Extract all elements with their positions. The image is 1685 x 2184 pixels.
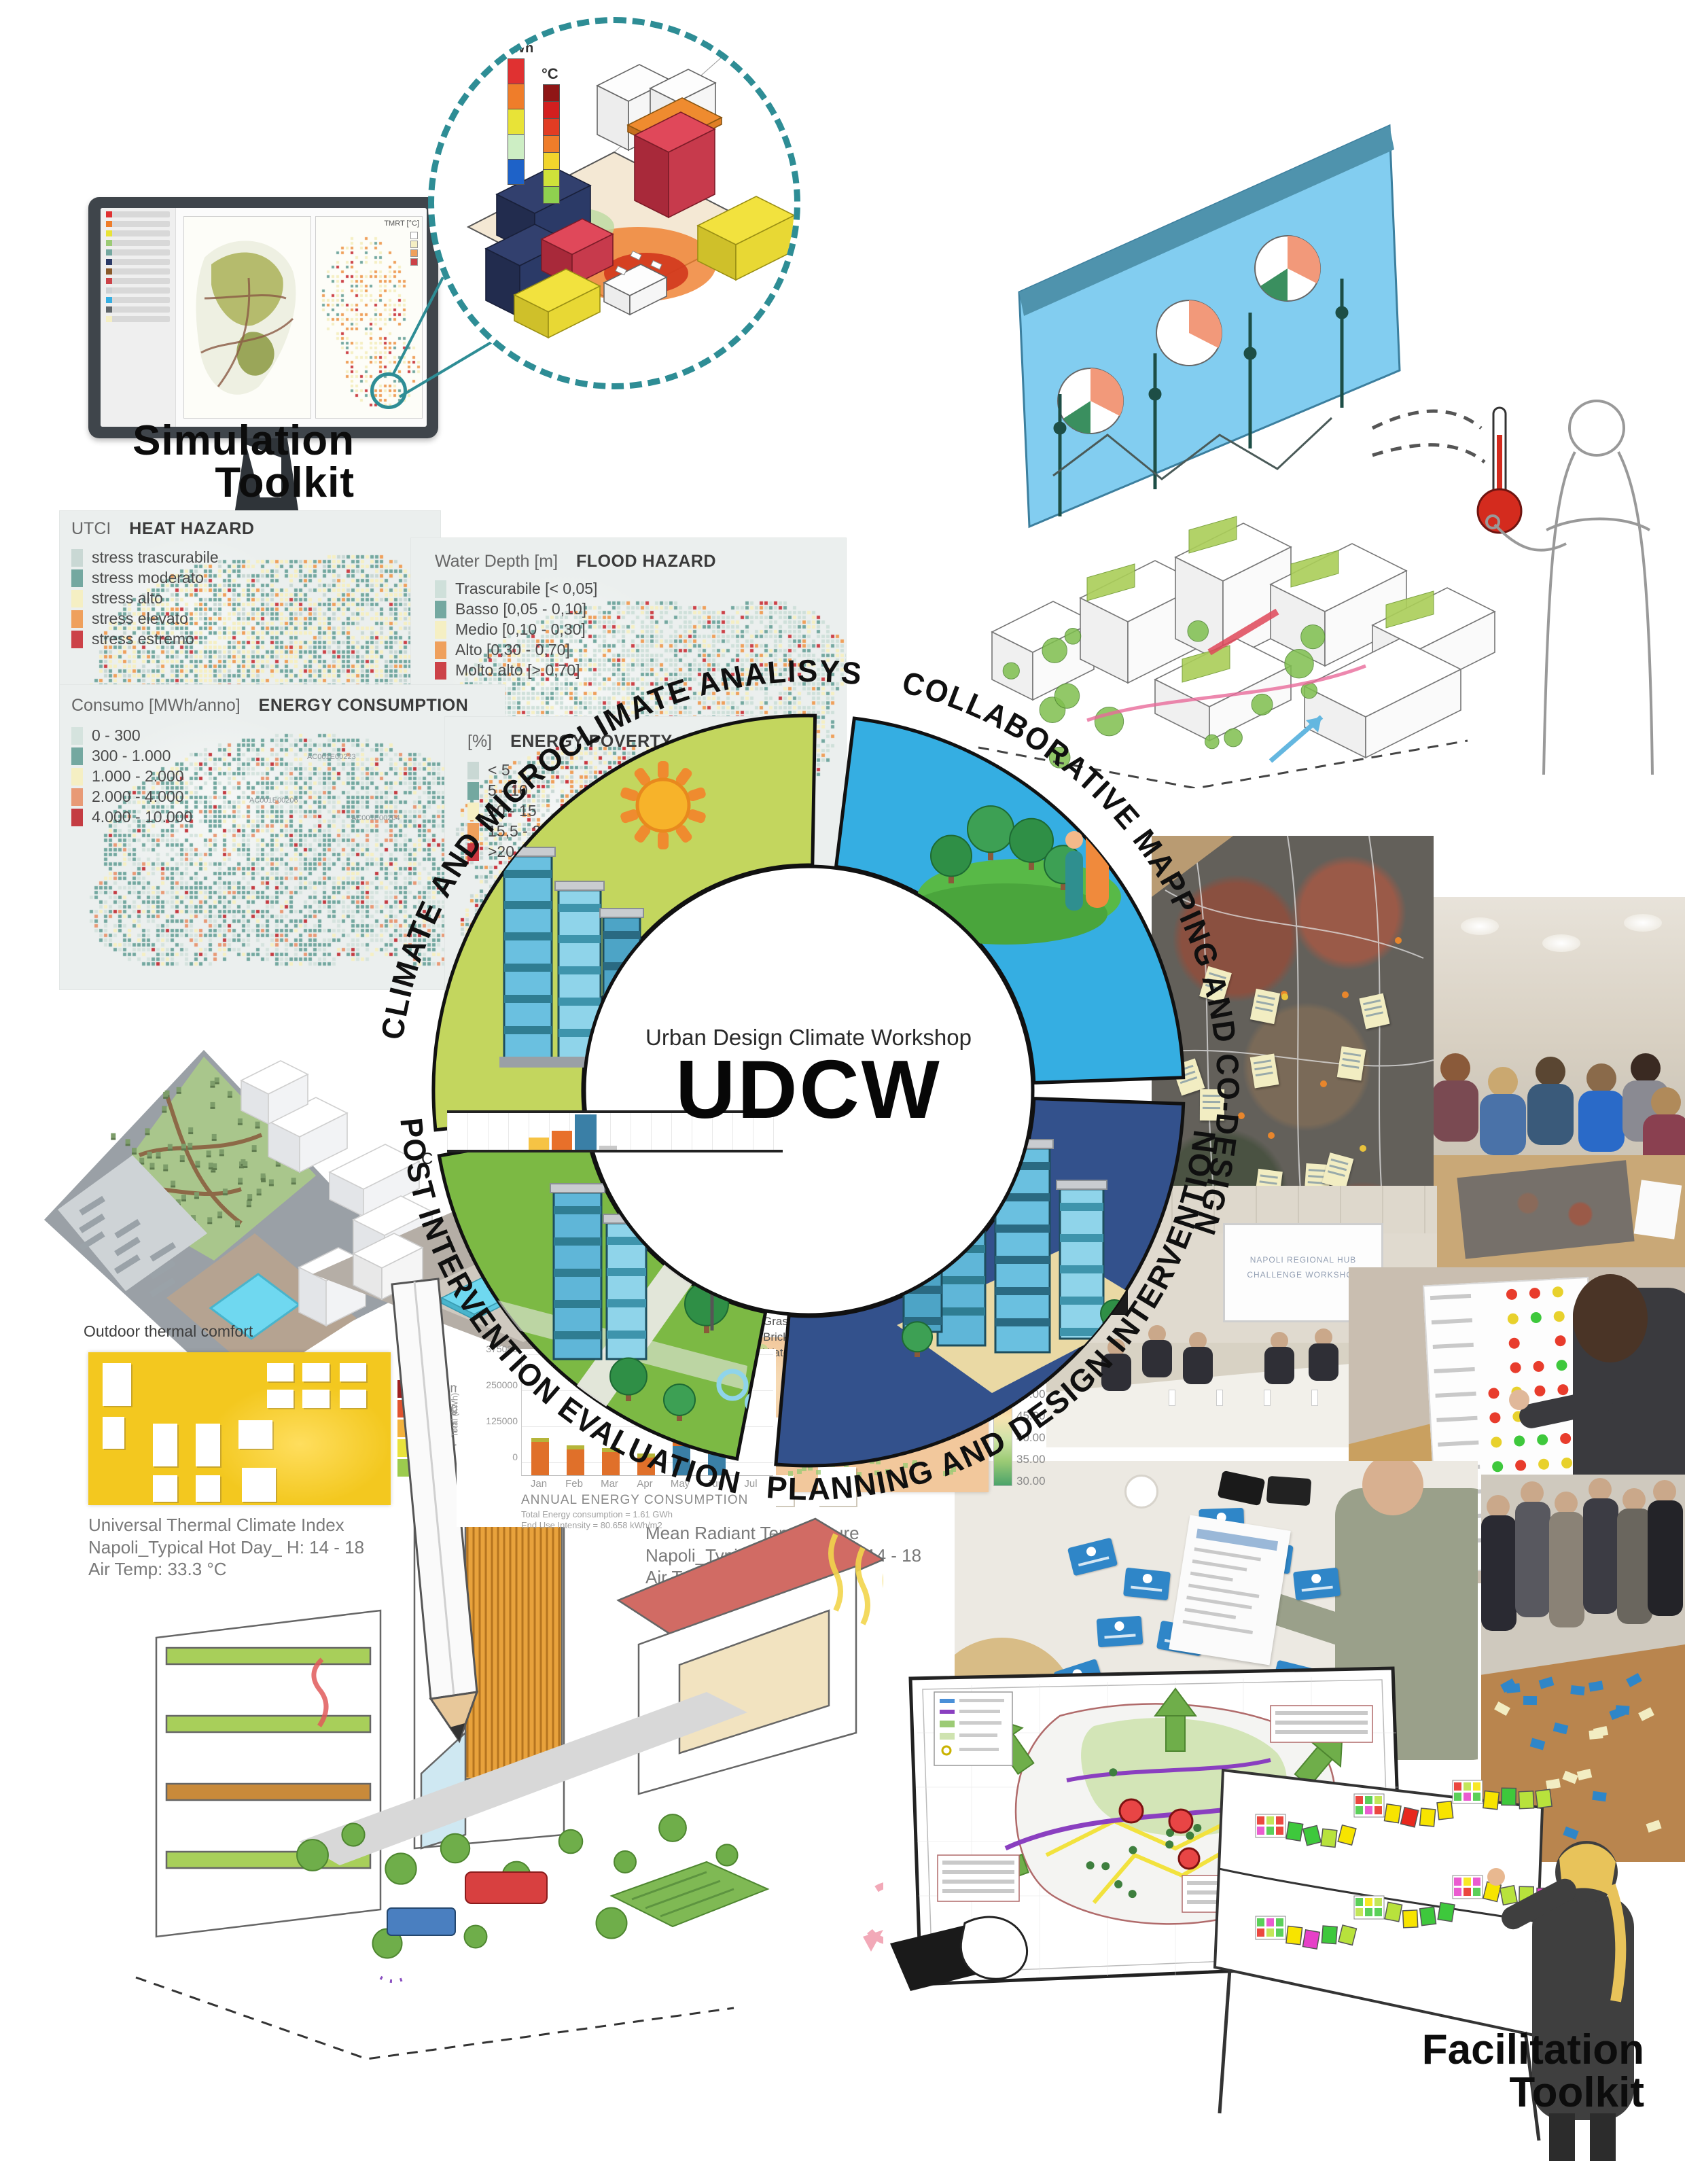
scale-cell xyxy=(508,58,525,84)
scale-tick: 40.00 xyxy=(1016,1431,1046,1445)
map-marker xyxy=(1342,991,1349,998)
blue-card xyxy=(1123,1568,1171,1601)
isometric-energy-model xyxy=(434,23,794,383)
month-label: Jul xyxy=(733,1478,768,1490)
legend-color-chip xyxy=(467,843,479,861)
scale-cell xyxy=(543,187,560,204)
card-icon xyxy=(1086,1546,1097,1557)
vote-dot xyxy=(1560,1433,1572,1445)
poster-text-stub xyxy=(1430,1294,1471,1300)
note-scribble xyxy=(1343,1058,1360,1063)
coffee-cup xyxy=(1124,1475,1158,1509)
sheet-line xyxy=(1194,1547,1261,1561)
vote-dot xyxy=(1557,1384,1569,1396)
legend-row: Wood pavement xyxy=(900,1299,1033,1313)
tmrt-chip xyxy=(410,241,418,248)
vegetation-pixel xyxy=(934,1403,939,1407)
vegetation-pixel xyxy=(892,1403,897,1408)
person-hair xyxy=(1573,1274,1648,1362)
scale-cell xyxy=(543,84,560,102)
facilitation-toolkit-line2: Toolkit xyxy=(1257,2071,1644,2114)
scale-tick: 30.00 xyxy=(1016,1475,1046,1488)
ceiling-light xyxy=(1542,934,1580,952)
note-scribble xyxy=(1255,1065,1273,1070)
note-scribble xyxy=(1342,1064,1360,1069)
blue-card xyxy=(1293,1568,1341,1601)
vegetation-pixel xyxy=(948,1470,953,1475)
heat-hazard-title: HEAT HAZARD xyxy=(129,519,254,538)
scale-cell xyxy=(508,84,525,109)
card-line xyxy=(1302,1586,1333,1592)
person-head xyxy=(1589,1478,1612,1501)
person-body xyxy=(1101,1354,1131,1391)
legend-label: < 5 xyxy=(488,761,510,779)
person-body xyxy=(1264,1347,1294,1384)
month-label: Jun xyxy=(698,1478,733,1490)
y-tick: 0 xyxy=(470,1451,518,1462)
legend-color-chip xyxy=(467,762,479,779)
scale-cell xyxy=(543,136,560,153)
chart-title: ANNUAL ENERGY CONSUMPTION xyxy=(521,1493,748,1508)
legend-label: 15,5 - 20 xyxy=(488,822,550,841)
tmrt-chip xyxy=(410,232,418,239)
landcovers-col2: Concrete pavementWood pavement xyxy=(900,1282,1033,1362)
chart-y-axis-label: Total (kWh) xyxy=(449,1393,459,1438)
legend-row: Concrete pavement xyxy=(900,1284,1033,1297)
tmrt-legend-title: TMRT [°C] xyxy=(384,219,419,228)
legend-label: 300 - 1.000 xyxy=(92,747,171,765)
dashed-flow-lines xyxy=(1372,411,1485,462)
water-bottle xyxy=(1216,1390,1223,1406)
legend-color-chip xyxy=(435,621,446,639)
note-scribble xyxy=(1205,984,1223,991)
vegetation-pixel xyxy=(889,1361,894,1366)
worksheet xyxy=(1169,1515,1290,1665)
layer-row xyxy=(106,316,170,322)
udcw-infographic-poster: TMRT [°C] Simulation Toolkit kWh °C xyxy=(0,0,1685,2184)
scale-cell xyxy=(508,160,525,185)
legend-label: stress moderato xyxy=(92,569,204,587)
vote-dot xyxy=(1534,1385,1546,1396)
area-code: AC001E00206 xyxy=(249,796,298,805)
flood-hazard-legend: Trascurabile [< 0,05]Basso [0,05 - 0,10]… xyxy=(435,578,597,682)
legend-color-chip xyxy=(71,727,83,745)
ring-art-codesign xyxy=(904,803,1121,945)
legend-color-chip xyxy=(71,631,83,648)
thermometer-icon xyxy=(1478,408,1521,533)
legend-label: stress alto xyxy=(92,589,163,607)
note-scribble xyxy=(1180,1076,1198,1084)
poster-text-stub xyxy=(1435,1392,1476,1398)
vegetation-pixel xyxy=(887,1374,891,1379)
celsius-scale-label: °C xyxy=(542,65,558,83)
sticky-note xyxy=(1250,1054,1279,1089)
layer-row xyxy=(106,240,170,246)
legend-label: 10 - 15 xyxy=(488,802,537,820)
person-hand xyxy=(1509,1390,1529,1410)
vegetation-pixel xyxy=(910,1406,915,1411)
energy-bar xyxy=(531,1438,549,1475)
legend-color-chip xyxy=(71,768,83,786)
climate-dashboard-city-sketch xyxy=(951,109,1685,788)
person-body xyxy=(1481,1515,1516,1631)
vote-dot xyxy=(1530,1312,1542,1324)
vegetation-pixel xyxy=(923,1433,927,1438)
layer-row xyxy=(106,230,170,236)
month-label: Jan xyxy=(521,1478,556,1490)
note-scribble xyxy=(1209,972,1226,979)
facilitation-toolkit-title: Facilitation Toolkit xyxy=(1257,2028,1644,2114)
layer-row xyxy=(106,249,170,256)
chart-note-2: End Use Intensity = 80.658 kWh/m2 xyxy=(521,1520,662,1530)
y-tick: 250000 xyxy=(470,1379,518,1390)
legend-row: stress moderato xyxy=(71,569,219,587)
temperature-color-scale xyxy=(993,1349,1012,1486)
legend-row: 300 - 1.000 xyxy=(71,747,192,765)
legend-row: 4.000 - 10.000 xyxy=(71,808,192,826)
facilitation-toolkit-line1: Facilitation xyxy=(1257,2028,1644,2071)
scale-cell xyxy=(543,102,560,119)
layer-row xyxy=(106,278,170,284)
person-body xyxy=(1183,1347,1213,1384)
small-card xyxy=(1571,1685,1585,1695)
legend-color-chip xyxy=(435,601,446,618)
vegetation-pixel xyxy=(915,1414,920,1419)
legend-color-chip xyxy=(71,610,83,628)
vegetation-pixel xyxy=(923,1443,928,1448)
person-head xyxy=(1488,1067,1518,1097)
ceiling-light xyxy=(1624,914,1662,932)
building-footprint xyxy=(886,1379,917,1400)
scale-tick: 35.00 xyxy=(1016,1453,1046,1466)
vote-dot xyxy=(1508,1337,1520,1349)
card-icon xyxy=(1311,1573,1321,1583)
energy-consumption-legend: 0 - 300300 - 1.0001.000 - 2.0002.000 - 4… xyxy=(71,724,192,828)
vote-dot xyxy=(1556,1360,1567,1371)
energy-model-zoom-circle: kWh °C xyxy=(428,17,800,389)
heat-hazard-prefix: UTCI xyxy=(71,519,111,538)
area-code: AC001E00223 xyxy=(307,753,356,761)
legend-label: 2.000 - 4.000 xyxy=(92,788,184,806)
person-body xyxy=(1480,1094,1526,1155)
vegetation-pixel xyxy=(908,1369,913,1374)
scale-cell xyxy=(543,119,560,136)
vote-dot xyxy=(1507,1313,1519,1324)
vote-dot xyxy=(1538,1458,1550,1470)
note-scribble xyxy=(1256,1000,1274,1006)
note-scribble xyxy=(1343,1052,1361,1057)
vegetation-pixel xyxy=(898,1413,903,1418)
note-scribble xyxy=(1364,1005,1382,1011)
person-body xyxy=(1515,1502,1550,1617)
heat-hazard-legend: stress trascurabilestress moderatostress… xyxy=(71,546,219,650)
legend-color-chip xyxy=(900,1299,926,1313)
vegetation-pixel xyxy=(928,1434,933,1439)
legend-row: Basso [0,05 - 0,10] xyxy=(435,600,597,618)
legend-label: Medio [0,10 - 0,30] xyxy=(455,620,586,639)
scale-tick: 55.00 xyxy=(1016,1366,1046,1379)
energy-bar xyxy=(602,1448,620,1475)
projector-text-1: NAPOLI REGIONAL HUB xyxy=(1225,1255,1381,1265)
legend-color-chip xyxy=(71,590,83,607)
map-marker xyxy=(1268,1132,1275,1139)
legend-row: >20 xyxy=(467,843,550,861)
month-label: Feb xyxy=(556,1478,592,1490)
phone xyxy=(1266,1476,1312,1506)
note-scribble xyxy=(1331,1159,1349,1165)
sheet-line xyxy=(1183,1620,1254,1634)
vote-dot xyxy=(1492,1461,1504,1473)
note-scribble xyxy=(1260,1174,1277,1178)
blue-card xyxy=(1097,1616,1143,1648)
legend-color-chip xyxy=(900,1284,926,1297)
celsius-color-scale xyxy=(543,84,560,204)
chart-note-1: Total Energy consumption = 1.61 GWh xyxy=(521,1509,673,1519)
layer-row xyxy=(106,221,170,227)
partial-axis-label: C xyxy=(421,1150,433,1169)
energy-bar xyxy=(708,1450,726,1475)
legend-color-chip xyxy=(467,782,479,800)
month-label: Apr xyxy=(627,1478,662,1490)
legend-row: Alto [0,30 - 0,70] xyxy=(435,641,597,659)
kwh-scale-label: kWh xyxy=(505,41,533,56)
vote-dot xyxy=(1488,1388,1500,1399)
vote-dot xyxy=(1555,1335,1566,1347)
person-body xyxy=(1578,1091,1625,1152)
phone xyxy=(1218,1470,1266,1506)
vote-dot xyxy=(1514,1435,1525,1447)
temperature-scale-ticks: 60.0055.0050.0045.0040.0035.0030.00 xyxy=(1016,1344,1046,1488)
legend-label: >20 xyxy=(488,843,514,861)
flood-hazard-prefix: Water Depth [m] xyxy=(435,552,558,571)
vote-dot xyxy=(1529,1288,1540,1299)
legend-label: Trascurabile [< 0,05] xyxy=(455,580,597,598)
vote-dot xyxy=(1561,1458,1573,1469)
legend-color-chip xyxy=(435,580,446,598)
ceiling-light xyxy=(1461,917,1499,935)
energy-consumption-prefix: Consumo [MWh/anno] xyxy=(71,696,241,715)
note-scribble xyxy=(1257,994,1275,1000)
vegetation-pixel xyxy=(903,1463,908,1468)
layer-row xyxy=(106,259,170,265)
legend-label: 4.000 - 10.000 xyxy=(92,808,192,826)
vegetation-pixel xyxy=(947,1412,952,1417)
poster-text-stub xyxy=(1434,1367,1475,1373)
legend-label: Basso [0,05 - 0,10] xyxy=(455,600,586,618)
person-head xyxy=(1440,1053,1470,1083)
legend-label: stress trascurabile xyxy=(92,548,219,567)
flood-hazard-title: FLOOD HAZARD xyxy=(576,552,716,571)
layer-row xyxy=(106,268,170,275)
sticky-note xyxy=(1200,1089,1224,1121)
person-head xyxy=(1653,1480,1676,1503)
water-bottle xyxy=(1311,1390,1318,1406)
sheet-line xyxy=(1190,1572,1233,1582)
vote-dot xyxy=(1553,1311,1565,1322)
area-code: AC001E00204 xyxy=(351,814,400,822)
tmrt-chip xyxy=(410,249,418,257)
person-body xyxy=(1434,1080,1478,1142)
month-label: May xyxy=(662,1478,698,1490)
legend-color-chip xyxy=(467,823,479,841)
energy-poverty-title: ENERGY POVERTY xyxy=(510,732,673,751)
vegetation-pixel xyxy=(885,1469,890,1474)
legend-row: Molto alto [> 0,70] xyxy=(435,661,597,680)
note-scribble xyxy=(1366,1011,1383,1017)
legend-label: Alto [0,30 - 0,70] xyxy=(455,641,570,659)
sheet-header xyxy=(1196,1528,1278,1551)
vegetation-pixel xyxy=(913,1364,918,1369)
scale-cell xyxy=(508,109,525,135)
water-bottle xyxy=(1264,1390,1271,1406)
poster-text-stub xyxy=(1438,1441,1478,1447)
person-head xyxy=(1555,1492,1578,1515)
layer-row xyxy=(106,211,170,217)
gis-map-view-landuse xyxy=(183,216,311,419)
card-icon xyxy=(1114,1621,1124,1632)
tv-display xyxy=(1074,1240,1128,1315)
month-label: Mar xyxy=(592,1478,627,1490)
legend-row: stress alto xyxy=(71,589,219,607)
legend-label: Concrete pavement xyxy=(933,1284,1033,1297)
simulation-toolkit-title: Simulation Toolkit xyxy=(95,420,355,504)
sticky-note xyxy=(1337,1046,1366,1081)
person-body xyxy=(1309,1343,1338,1381)
legend-row: 5 - 10 xyxy=(467,781,550,800)
legend-color-chip xyxy=(71,747,83,765)
legend-color-chip xyxy=(435,662,446,680)
scale-tick: 45.00 xyxy=(1016,1409,1046,1423)
scale-tick: 50.00 xyxy=(1016,1388,1046,1401)
small-card xyxy=(1589,1680,1603,1691)
y-tick: 125000 xyxy=(470,1415,518,1426)
note-scribble xyxy=(1203,1107,1220,1109)
photo-codesign-table-workshop xyxy=(1434,897,1685,1271)
poster-text-stub xyxy=(1432,1318,1472,1324)
scale-cell xyxy=(508,135,525,160)
landuse-map-sketch xyxy=(184,217,311,419)
vote-dot xyxy=(1506,1288,1518,1300)
legend-row: < 5 xyxy=(467,761,550,779)
energy-consumption-title: ENERGY CONSUMPTION xyxy=(259,696,469,715)
gis-layer-panel xyxy=(101,208,176,427)
energy-bar xyxy=(637,1454,655,1475)
poster-text-stub xyxy=(1436,1416,1477,1422)
card-icon xyxy=(1142,1573,1152,1583)
sheet-line xyxy=(1184,1608,1236,1619)
note-scribble xyxy=(1207,978,1224,985)
legend-label: 0 - 300 xyxy=(92,726,141,745)
legend-row: Trascurabile [< 0,05] xyxy=(435,580,597,598)
histogram-bar xyxy=(552,1131,572,1150)
card-line xyxy=(1104,1634,1135,1638)
blue-card xyxy=(1067,1538,1118,1577)
legend-label: stress elevato xyxy=(92,610,188,628)
sketch-city xyxy=(978,516,1495,788)
legend-row: stress elevato xyxy=(71,610,219,628)
legend-label: stress estremo xyxy=(92,630,194,648)
note-scribble xyxy=(1203,1101,1220,1103)
vote-dot xyxy=(1515,1460,1527,1471)
scale-cell xyxy=(543,153,560,170)
person-body xyxy=(1583,1498,1618,1614)
energy-poverty-prefix: [%] xyxy=(467,732,492,751)
water-bottle xyxy=(1169,1390,1175,1406)
paper-sheet xyxy=(1634,1180,1682,1239)
vegetation-pixel xyxy=(891,1430,895,1435)
energy-poverty-legend: < 55 - 1010 - 1515,5 - 20>20 xyxy=(467,759,550,863)
person-outline xyxy=(1487,401,1652,775)
person-head xyxy=(1631,1053,1661,1083)
energy-bar xyxy=(567,1445,584,1475)
legend-row: 1.000 - 2.000 xyxy=(71,767,192,786)
vegetation-pixel xyxy=(912,1460,917,1465)
person-head xyxy=(1487,1495,1510,1518)
note-scribble xyxy=(1255,1006,1273,1012)
person-head xyxy=(1622,1488,1646,1511)
layer-row xyxy=(106,287,170,294)
ring-center-title: Urban Design Climate Workshop UDCW xyxy=(591,1025,1026,1129)
legend-row: 10 - 15 xyxy=(467,802,550,820)
note-scribble xyxy=(1330,1165,1347,1172)
legend-color-chip xyxy=(71,809,83,826)
energy-consumption-map: Consumo [MWh/anno] ENERGY CONSUMPTION 0 … xyxy=(60,685,505,989)
legend-label: 1.000 - 2.000 xyxy=(92,767,184,786)
legend-color-chip xyxy=(71,569,83,587)
person-head xyxy=(1521,1481,1544,1504)
legend-label: Molto alto [> 0,70] xyxy=(455,661,580,680)
annual-energy-consumption-chart: Total (kWh) ANNUAL ENERGY CONSUMPTION To… xyxy=(457,1349,776,1527)
legend-color-chip xyxy=(435,641,446,659)
legend-row: 0 - 300 xyxy=(71,726,192,745)
legend-label: 5 - 10 xyxy=(488,781,528,800)
histogram-bar xyxy=(599,1146,617,1150)
map-marker xyxy=(1238,1112,1245,1119)
note-scribble xyxy=(1256,1072,1273,1076)
legend-row: stress estremo xyxy=(71,630,219,648)
person-body xyxy=(1648,1500,1683,1616)
y-tick: 375000 xyxy=(470,1343,518,1354)
layer-row xyxy=(106,297,170,303)
vegetation-pixel xyxy=(905,1407,910,1412)
card-line xyxy=(1131,1586,1162,1592)
layer-row xyxy=(106,306,170,313)
vote-dot xyxy=(1552,1286,1563,1298)
legend-color-chip xyxy=(71,549,83,567)
legend-row: stress trascurabile xyxy=(71,548,219,567)
kwh-color-scale xyxy=(508,58,525,185)
note-scribble xyxy=(1203,1095,1220,1097)
histogram-bar xyxy=(529,1138,549,1150)
energy-poverty-map: [%] ENERGY POVERTY < 55 - 1010 - 1515,5 … xyxy=(445,717,771,1002)
simulation-toolkit-line1: Simulation xyxy=(95,420,355,462)
vegetation-pixel xyxy=(906,1415,911,1420)
person-body xyxy=(1549,1512,1584,1627)
vegetation-pixel xyxy=(943,1471,948,1476)
legend-label: Wood pavement xyxy=(933,1299,1016,1313)
card-line xyxy=(1078,1556,1110,1566)
sheet-line xyxy=(1188,1583,1259,1598)
vote-dot xyxy=(1489,1412,1501,1424)
vote-dot xyxy=(1533,1361,1544,1373)
small-card xyxy=(1506,1683,1521,1693)
note-scribble xyxy=(1254,1059,1271,1064)
scale-cell xyxy=(543,170,560,187)
vote-dot xyxy=(1537,1434,1548,1445)
person-head xyxy=(1536,1057,1565,1087)
zoom-buildings xyxy=(486,65,794,338)
note-scribble xyxy=(1309,1169,1326,1172)
